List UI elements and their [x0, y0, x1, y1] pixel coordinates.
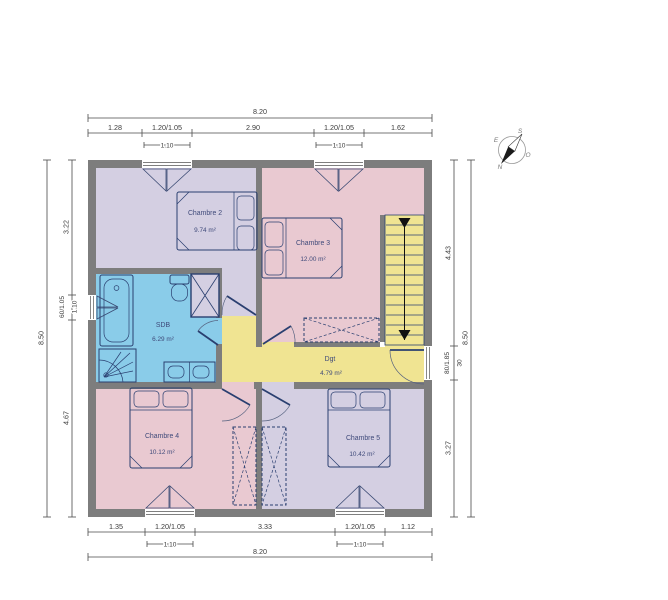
- room-label-chambre3: Chambre 3: [296, 240, 330, 247]
- dim-right-seg3: 3.27: [444, 441, 453, 455]
- room-label-chambre5: Chambre 5: [346, 435, 380, 442]
- wall-corridor-bottom-right: [294, 382, 424, 389]
- closet-chambre3-icon: [304, 318, 379, 342]
- dim-left-window: 1.10: [72, 300, 79, 313]
- dim-left-seg1: 3.22: [62, 220, 71, 234]
- floor-plan-page: Chambre 2 9.74 m² Chambre 3 12.00 m² SDB…: [0, 0, 668, 600]
- dim-left-seg3: 4.67: [62, 411, 71, 425]
- dim-top-total: 8.20: [253, 107, 267, 116]
- wall-bottom-1: [88, 509, 145, 517]
- dim-right-seg1: 4.43: [444, 246, 453, 260]
- dim-bottom-total: 8.20: [253, 547, 267, 556]
- dim-right-total: 8.50: [461, 331, 470, 345]
- wall-right-2: [424, 380, 432, 517]
- dim-top-seg5: 1.62: [391, 123, 405, 132]
- compass-label-e: E: [494, 137, 499, 144]
- dim-top-window2: 1.10: [333, 143, 346, 150]
- corridor-stub-floor: [222, 316, 256, 347]
- room-area-chambre4: 10.12 m²: [149, 449, 174, 456]
- room-area-chambre5: 10.42 m²: [349, 451, 374, 458]
- dim-top-window1: 1.10: [161, 143, 174, 150]
- dim-top-seg1: 1.28: [108, 123, 122, 132]
- dim-left-seg2: 60/1.05: [59, 296, 66, 318]
- compass-label-n: N: [498, 164, 503, 171]
- chambre5-door-opening-floor: [262, 382, 294, 389]
- dim-bottom-seg5: 1.12: [401, 522, 415, 531]
- dim-bottom-window1: 1.10: [164, 542, 177, 549]
- dim-bottom-seg2: 1.20/1.05: [155, 522, 185, 531]
- chambre3-door-opening-floor: [262, 342, 294, 347]
- room-label-sdb: SDB: [156, 322, 171, 329]
- dimensions-right: 4.43 80/1.85 30 3.27 8.50: [444, 160, 476, 517]
- dim-bottom-seg1: 1.35: [109, 522, 123, 531]
- room-area-chambre3: 12.00 m²: [300, 256, 325, 263]
- compass-label-o: O: [525, 152, 530, 159]
- dim-bottom-seg3: 3.33: [258, 522, 272, 531]
- room-label-chambre4: Chambre 4: [145, 433, 179, 440]
- closet-chambre5-icon: [262, 427, 286, 505]
- dim-top-seg4: 1.20/1.05: [324, 123, 354, 132]
- room-label-chambre2: Chambre 2: [188, 210, 222, 217]
- dim-left-total: 8.50: [37, 331, 46, 345]
- compass-label-s: S: [518, 128, 523, 135]
- floor-plan-drawing: Chambre 2 9.74 m² Chambre 3 12.00 m² SDB…: [0, 0, 668, 600]
- closet-chambre4-icon: [233, 427, 256, 505]
- dim-right-seg2: 80/1.85: [444, 352, 451, 374]
- dimensions-top: 8.20 1.28 1.20/1.05 2.90 1.20/1.05 1.62 …: [88, 107, 432, 150]
- wall-left-1: [88, 160, 96, 295]
- wall-right-1: [424, 160, 432, 346]
- wall-corridor-bottom-stub: [254, 382, 262, 389]
- dim-top-seg3: 2.90: [246, 123, 260, 132]
- wall-top-3: [364, 160, 432, 168]
- wall-bottom-2: [195, 509, 335, 517]
- room-area-chambre2: 9.74 m²: [194, 227, 216, 234]
- wall-chambre4-chambre5: [256, 389, 262, 509]
- wall-chambre2-bottom: [96, 268, 222, 274]
- dim-top-seg2: 1.20/1.05: [152, 123, 182, 132]
- room-label-dgt: Dgt: [325, 356, 336, 363]
- dimensions-left: 8.50 3.22 60/1.05 1.10 4.67: [37, 160, 79, 517]
- chambre4-door-opening-floor: [222, 382, 254, 389]
- dimensions-bottom: 1.35 1.20/1.05 3.33 1.20/1.05 1.12 1.10 …: [88, 522, 432, 561]
- wall-top-1: [88, 160, 142, 168]
- wall-stairs-left: [380, 215, 385, 342]
- room-area-dgt: 4.79 m²: [320, 370, 342, 377]
- wall-left-2: [88, 320, 96, 517]
- wall-top-2: [192, 160, 314, 168]
- dim-right-sub: 30: [457, 359, 464, 367]
- wall-sdb-right-lower: [216, 344, 222, 382]
- closet-solid-icon: [191, 274, 219, 317]
- wall-chambre3-corridor: [294, 342, 380, 347]
- compass-icon: E S O N: [494, 128, 531, 171]
- dim-bottom-window2: 1.10: [354, 542, 367, 549]
- window-right-corridor-icon: [424, 346, 432, 380]
- dim-bottom-seg4: 1.20/1.05: [345, 522, 375, 531]
- room-area-sdb: 6.29 m²: [152, 336, 174, 343]
